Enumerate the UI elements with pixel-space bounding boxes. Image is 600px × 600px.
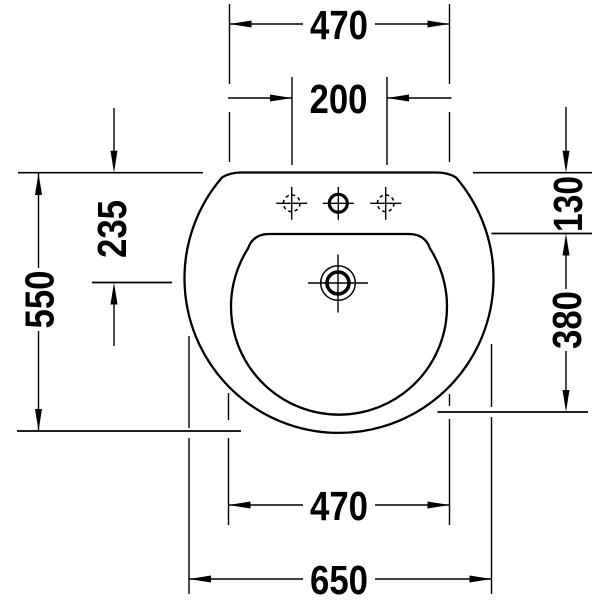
inner-bowl-outline [231,234,447,415]
arrowhead-right [428,21,450,28]
arrowhead-up [35,173,42,195]
dimension-label-overall-width: 650 [310,557,368,600]
dimension-label-back-to-bowl-edge: 130 [545,176,591,232]
drawing-canvas: 470 200 550 235 130 [0,0,600,600]
arrowhead-down [35,409,42,431]
washbasin-technical-drawing: 470 200 550 235 130 [0,0,600,600]
arrowhead-up [563,234,570,256]
dimension-label-back-width: 470 [310,2,368,48]
arrowhead-down [111,151,118,173]
dimension-bowl-depth: 380 [438,234,591,413]
dimension-back-to-bowl-edge: 130 [473,107,592,234]
arrowhead-left [387,95,409,102]
drain-hole [308,255,368,313]
arrowhead-left [230,21,252,28]
arrowhead-left [229,502,251,509]
dimension-label-overall-depth: 550 [17,271,63,329]
dimension-tap-hole-spacing: 200 [228,76,452,165]
arrowhead-up [111,283,118,305]
dimension-overall-width: 650 [189,336,492,600]
dimension-label-back-to-drain: 235 [89,200,135,258]
dimension-label-tap-hole-spacing: 200 [310,76,368,122]
arrowhead-left [189,576,211,583]
arrowhead-right [470,576,492,583]
arrowhead-right [428,502,450,509]
dimension-back-to-drain: 235 [89,108,172,346]
dimension-label-bowl-width: 470 [310,483,368,529]
arrowhead-right [270,95,292,102]
arrowhead-down [563,151,570,173]
dimension-label-bowl-depth: 380 [544,291,590,349]
arrowhead-down [563,390,570,412]
tap-holes [276,187,401,220]
